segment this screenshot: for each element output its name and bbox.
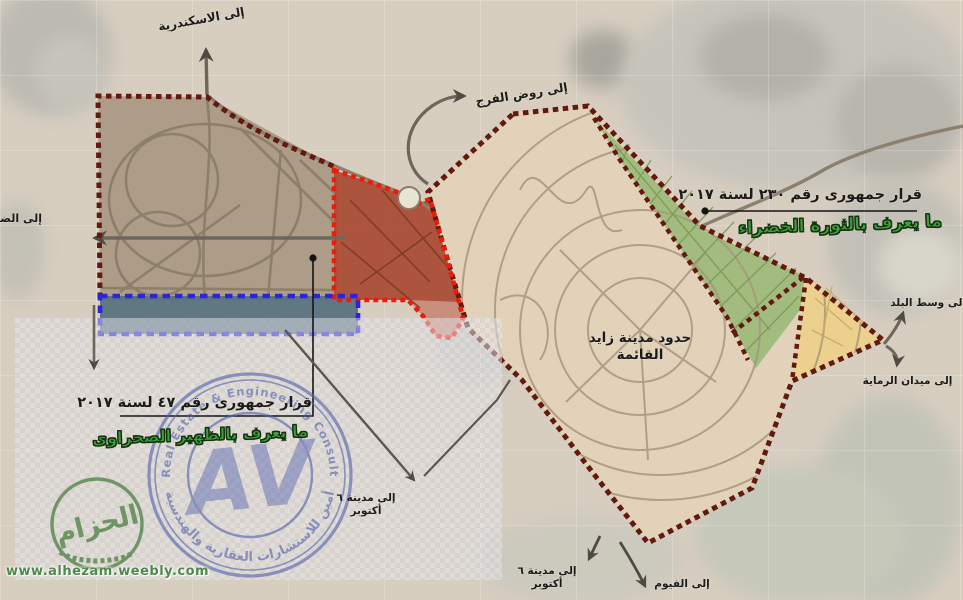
arrow-to-october-south (589, 536, 600, 559)
leader-dot (701, 207, 708, 214)
arrow-to-fayoum (620, 542, 645, 586)
label-to-october-2b: أكتوبر (531, 578, 562, 590)
label-to-dabaa: إلى الضبعة (0, 212, 42, 226)
avr-stamp-watermark: AVR Real Estate & Engineering Consultanc… (0, 0, 351, 576)
satellite-planning-map: AVR Real Estate & Engineering Consultanc… (0, 0, 963, 600)
label-to-wasat-elbalad: إلى وسط البلد (896, 297, 963, 310)
annotation-layer: AVR Real Estate & Engineering Consultanc… (0, 0, 963, 600)
decree-47-text: قرار جمهورى رقم ٤٧ لسنة ٢٠١٧ (100, 394, 312, 412)
label-to-october-1b: أكتوبر (350, 505, 381, 517)
label-to-midan-elremaya: إلى ميدان الرماية (855, 375, 960, 388)
label-to-october-2a: إلى مدينة ٦ (517, 565, 576, 577)
road-to-october (424, 380, 510, 476)
hezam-logo: الحزام (52, 479, 142, 569)
decree-230-text: قرار جمهورى رقم ٢٣٠ لسنة ٢٠١٧ (712, 186, 922, 204)
hezam-logo-text: الحزام (52, 499, 142, 550)
label-zayed-boundary-2: القائمة (617, 347, 664, 363)
hezam-website-url: www.alhezam.weebly.com (6, 564, 209, 579)
label-to-october-1a: إلى مدينة ٦ (336, 492, 395, 504)
leader-dot (309, 254, 316, 261)
label-zayed-boundary-1: حدود مدينة زايد (589, 330, 691, 346)
label-to-fayoum: إلى الفيوم (650, 578, 714, 591)
